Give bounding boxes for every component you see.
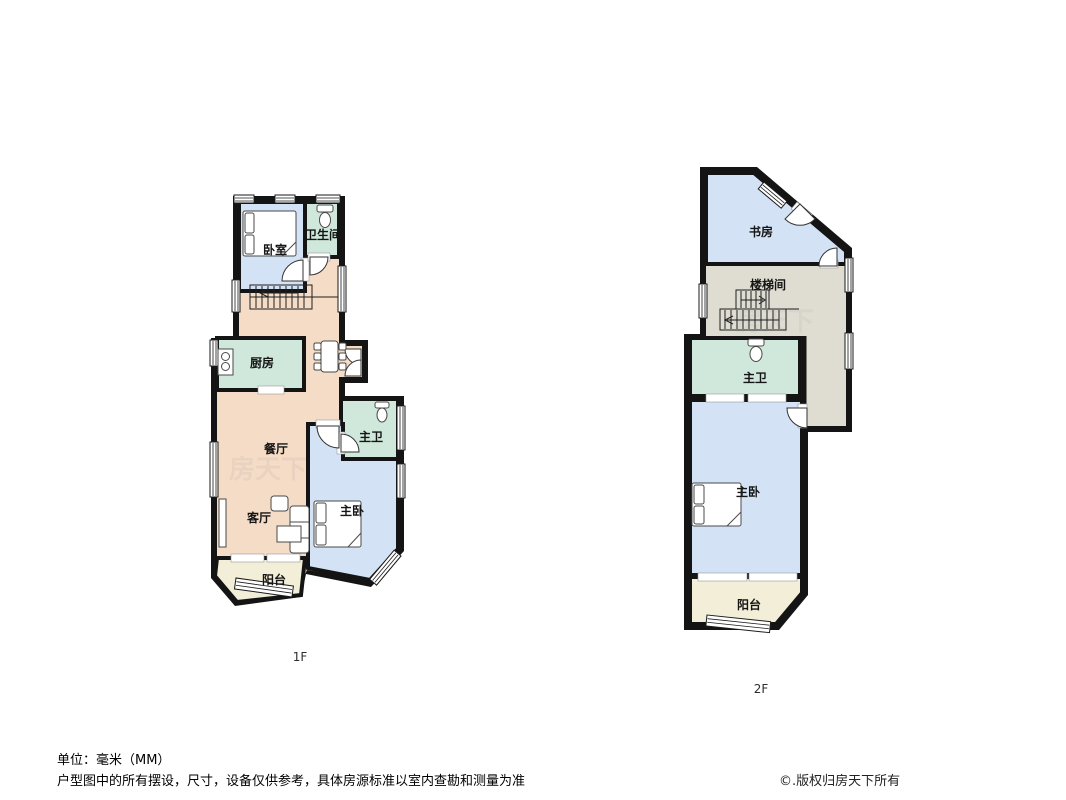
opening-kitchen-1f bbox=[258, 386, 284, 394]
window-kitchen-1f bbox=[210, 340, 218, 366]
opening-master-bathroom-right-2f bbox=[748, 394, 786, 402]
window-living-1f bbox=[210, 442, 218, 497]
room-label-master-bathroom-1f: 主卫 bbox=[359, 429, 383, 444]
opening-balcony-right-2f bbox=[749, 573, 797, 581]
window-master-bedroom-1f bbox=[397, 464, 405, 498]
room-label-dining-1f: 餐厅 bbox=[264, 441, 288, 456]
window-top-right-1f bbox=[316, 195, 340, 203]
window-left-stairwell-2f bbox=[699, 284, 707, 318]
opening-balcony-door-left-1f bbox=[231, 554, 264, 562]
watermark-1f: 房天下 bbox=[229, 455, 307, 485]
window-right-hall-1f bbox=[338, 266, 346, 312]
window-master-bathroom-1f bbox=[397, 406, 405, 450]
window-left-stairs-1f bbox=[232, 280, 240, 312]
floor-label-1f: 1F bbox=[293, 650, 308, 664]
room-master-bathroom-2f bbox=[690, 338, 800, 396]
floor-2f: 房天下 书房 楼梯间 主卫 主卧 阳台 2F bbox=[684, 167, 853, 696]
tv-cabinet-living-1f bbox=[219, 499, 226, 547]
dining-table-1f bbox=[314, 341, 346, 372]
opening-balcony-left-2f bbox=[698, 573, 747, 581]
room-label-stairwell-2f: 楼梯间 bbox=[750, 277, 786, 292]
coffee-table-1f bbox=[277, 526, 301, 542]
window-top-middle-1f bbox=[275, 195, 295, 203]
room-label-study-2f: 书房 bbox=[749, 224, 773, 239]
floor-1f: 房天下 卧室 卫生间 厨房 餐厅 主卫 客厅 主卧 阳台 1F bbox=[210, 195, 405, 664]
room-label-balcony-1f: 阳台 bbox=[262, 572, 286, 587]
window-right-upper-2f bbox=[845, 258, 853, 292]
opening-balcony-door-right-1f bbox=[267, 554, 300, 562]
room-label-living-1f: 客厅 bbox=[246, 510, 271, 525]
room-label-master-bedroom-2f: 主卧 bbox=[736, 484, 760, 499]
room-label-kitchen-1f: 厨房 bbox=[250, 355, 274, 370]
room-label-bathroom-1f: 卫生间 bbox=[305, 227, 341, 242]
bed-master-bedroom-2f bbox=[692, 483, 741, 526]
floor-label-2f: 2F bbox=[754, 682, 769, 696]
room-label-master-bedroom-1f: 主卧 bbox=[340, 503, 364, 518]
window-top-left-1f bbox=[234, 195, 254, 203]
room-label-master-bathroom-2f: 主卫 bbox=[743, 370, 767, 385]
stove-kitchen-1f bbox=[218, 349, 233, 375]
floorplan-canvas: 房天下 卧室 卫生间 厨房 餐厅 主卫 客厅 主卧 阳台 1F bbox=[0, 0, 1066, 800]
opening-master-bathroom-left-2f bbox=[706, 394, 744, 402]
window-right-middle-2f bbox=[845, 333, 853, 369]
watermark-2f: 房天下 bbox=[736, 307, 814, 337]
room-label-bedroom-1f: 卧室 bbox=[263, 242, 287, 257]
copyright: ©.版权归房天下所有 bbox=[779, 770, 900, 789]
disclaimer: 户型图中的所有摆设，尺寸，设备仅供参考，具体房源标准以室内查勘和测量为准 bbox=[57, 770, 525, 789]
unit-note: 单位：毫米（MM） bbox=[57, 749, 170, 768]
room-label-balcony-2f: 阳台 bbox=[737, 597, 761, 612]
